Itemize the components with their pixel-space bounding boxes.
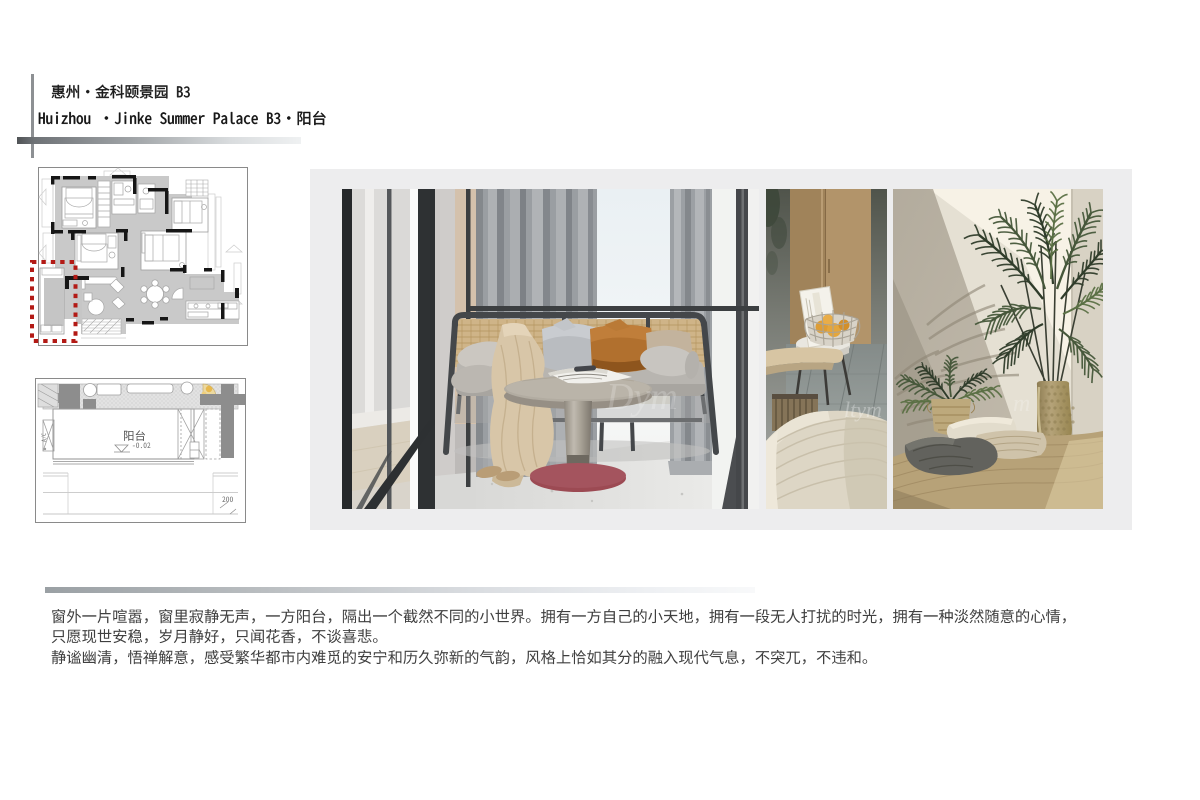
svg-text:m: m: [1013, 391, 1030, 417]
svg-text:Dym: Dym: [605, 376, 678, 418]
svg-text:ltym: ltym: [844, 397, 882, 422]
